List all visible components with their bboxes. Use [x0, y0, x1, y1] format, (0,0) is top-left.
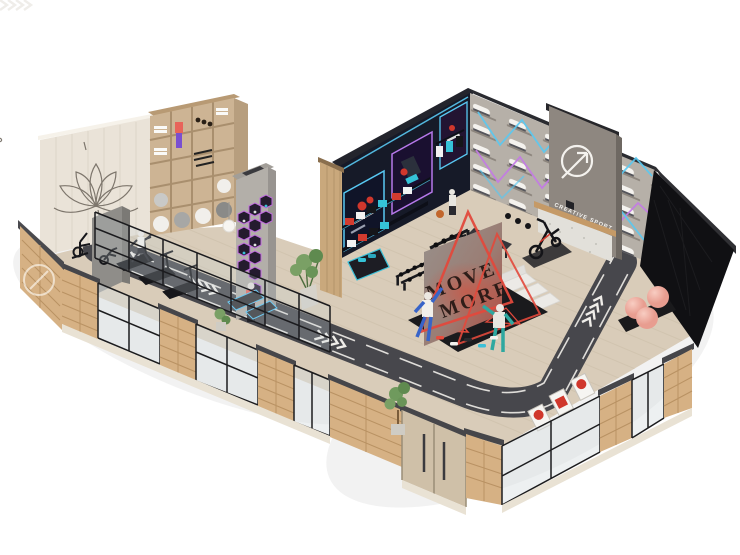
wood-partition	[318, 157, 344, 298]
pendant-lamp	[223, 220, 235, 232]
scene-canvas: CREATIVE SPORT	[0, 0, 740, 555]
basketball	[436, 210, 444, 218]
display-outfit	[175, 122, 183, 148]
equipment-shelving	[148, 94, 248, 236]
brick-pillar	[464, 428, 504, 505]
store-3d-render: CREATIVE SPORT	[0, 0, 740, 555]
